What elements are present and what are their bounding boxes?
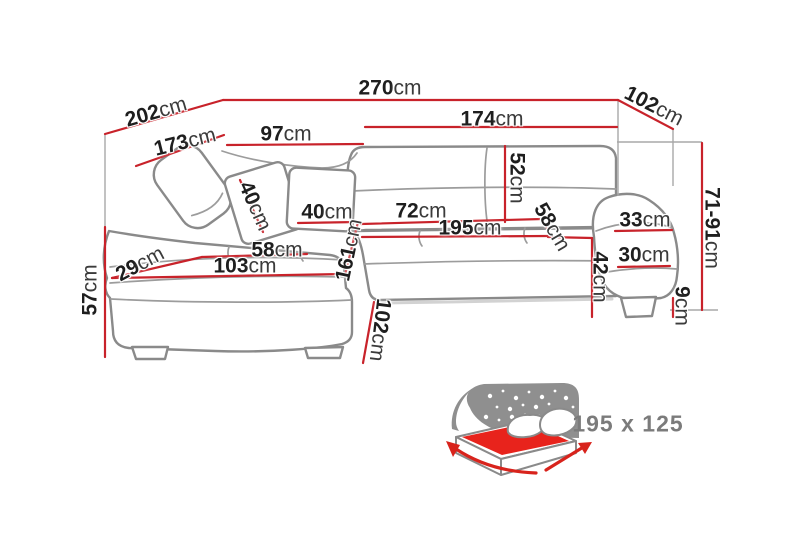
dim-unit: cm [284, 123, 312, 146]
dim-value: 30 [618, 244, 641, 267]
dim-unit: cm [275, 239, 303, 262]
dim-total-width: 270cm [358, 78, 421, 99]
dim-height-range: 71-91cm [702, 187, 723, 269]
dim-armrest-front-width: 30cm [618, 245, 669, 266]
dim-value: 57 [79, 292, 102, 315]
dim-unit: cm [394, 77, 422, 100]
dim-value: 9 [671, 286, 694, 298]
dim-right-back-width: 174cm [460, 109, 523, 130]
dim-value: 40 [301, 201, 324, 224]
dim-value: 71-91 [701, 187, 724, 241]
dim-unit: cm [506, 176, 529, 204]
dim-value: 52 [506, 152, 529, 175]
dim-unit: cm [642, 244, 670, 267]
dim-value: 174 [460, 108, 495, 131]
dim-seat-height: 42cm [590, 251, 611, 302]
dim-unit: cm [643, 209, 671, 232]
right-foot [621, 297, 656, 317]
dim-unit: cm [496, 108, 524, 131]
dim-unit: cm [474, 217, 502, 240]
dim-value: 102 [368, 297, 395, 335]
dim-unit: cm [79, 264, 102, 292]
left-back-panel [222, 151, 357, 168]
dim-left-back-width: 97cm [260, 124, 311, 145]
dim-backrest-height: 52cm [507, 152, 528, 203]
bed-size-label: 195 x 125 [572, 411, 683, 438]
dim-value: 72 [395, 200, 418, 223]
dim-unit: cm [589, 275, 612, 303]
dim-unit: cm [365, 332, 391, 363]
sofa-dimension-diagram: 270cm 202cm 173cm 97cm 174cm 102cm 71-91… [0, 0, 800, 533]
dim-value: 103 [213, 255, 248, 278]
dim-armrest-top-width: 33cm [619, 210, 670, 231]
dim-value: 270 [358, 77, 393, 100]
dim-value: 97 [260, 123, 283, 146]
dim-value: 33 [619, 209, 642, 232]
dim-sleeping-length: 195cm [438, 218, 501, 239]
dim-leg-height: 9cm [672, 286, 693, 326]
storage-bed-icon [446, 383, 592, 475]
dim-value: 195 [438, 217, 473, 240]
dim-unit: cm [671, 298, 694, 326]
dim-chaise-height: 57cm [80, 264, 101, 315]
dim-value: 42 [589, 251, 612, 274]
chaise-foot-right [305, 347, 343, 358]
dim-chaise-front-width: 103cm [213, 256, 276, 277]
chaise-foot-left [132, 347, 168, 359]
dim-unit: cm [701, 241, 724, 269]
dim-unit: cm [249, 255, 277, 278]
